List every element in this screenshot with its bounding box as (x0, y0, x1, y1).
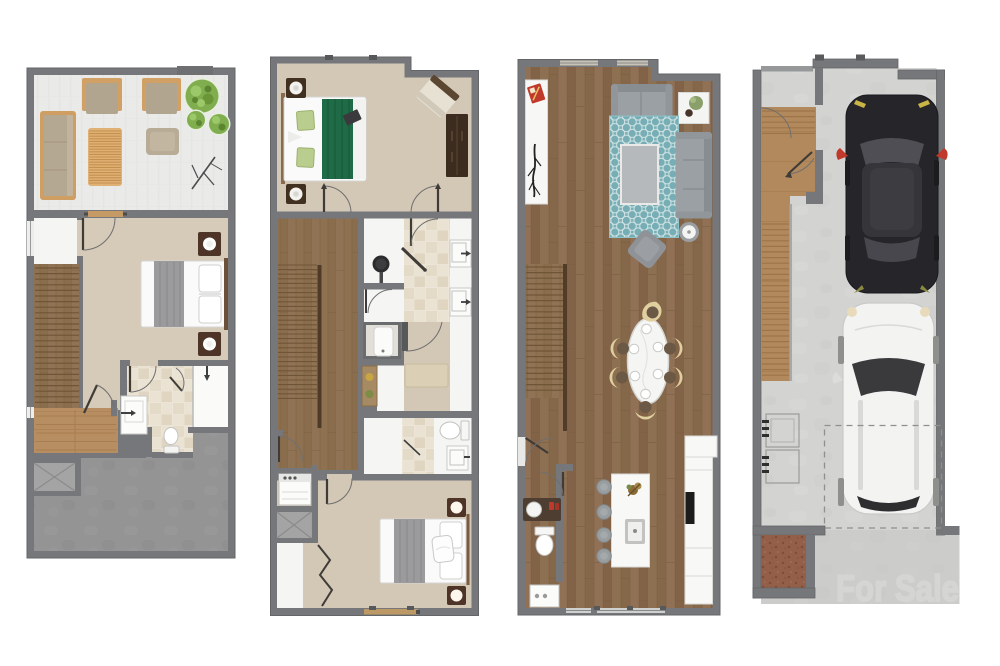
svg-text:For Sale: For Sale (836, 568, 959, 609)
